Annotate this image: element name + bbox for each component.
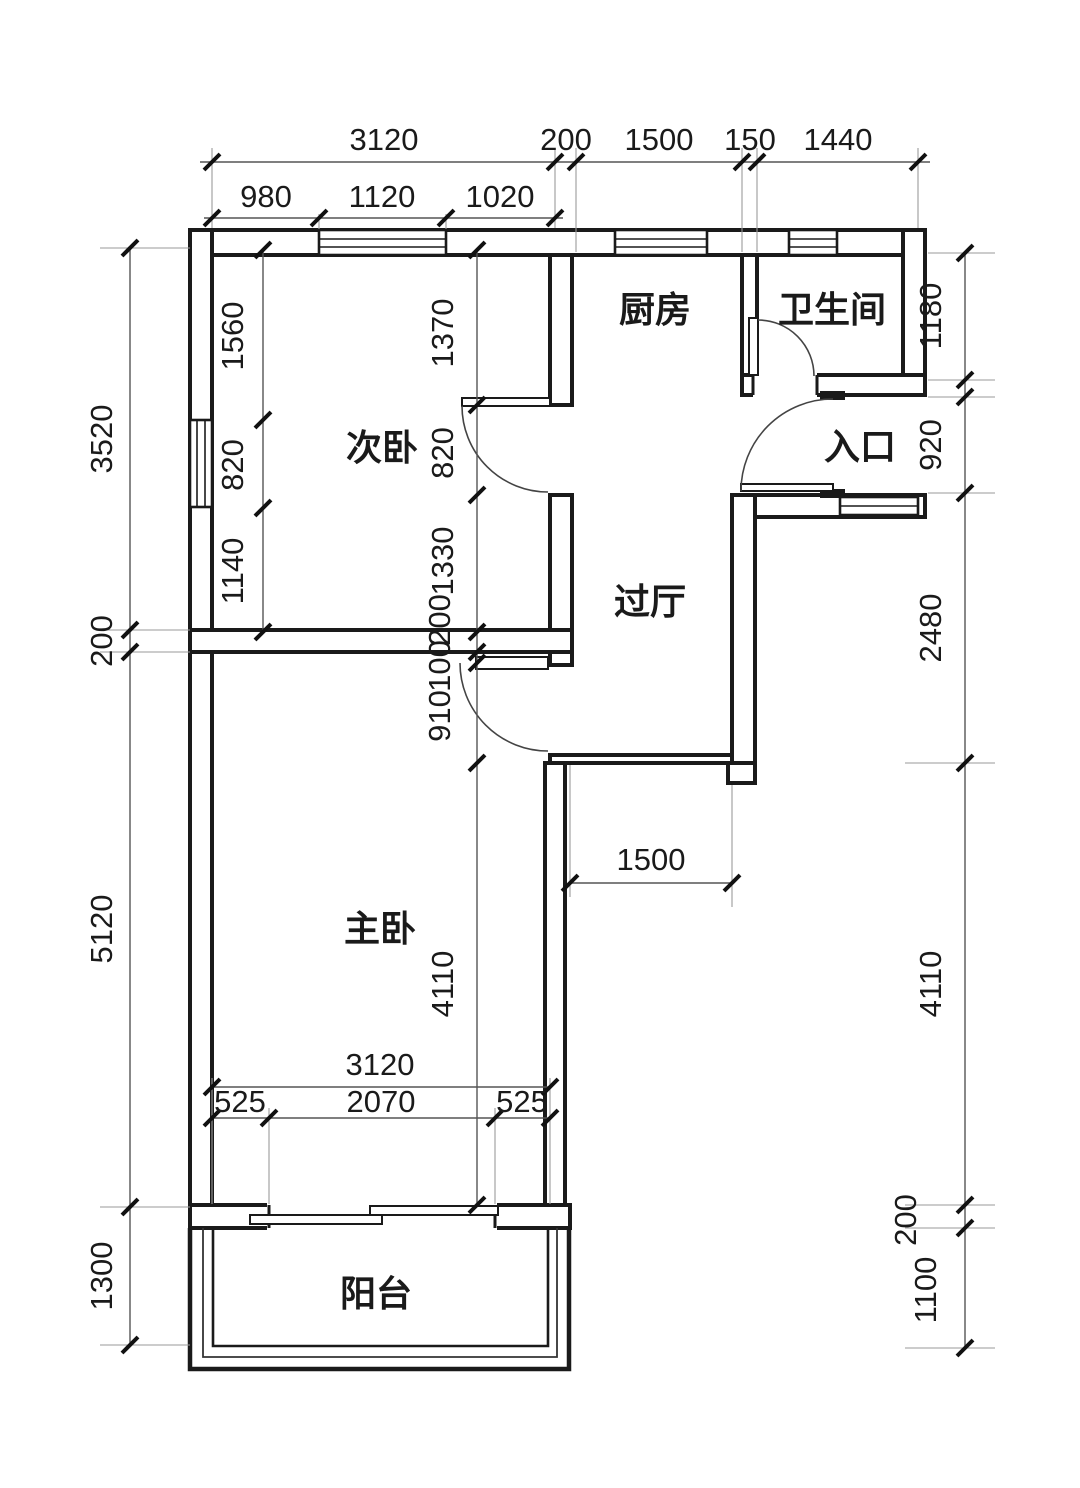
room-label-hallway: 过厅 — [614, 582, 686, 623]
dim-door-200: 200 — [422, 594, 457, 646]
dim-left-1300: 1300 — [84, 1242, 119, 1311]
dim-master-3120: 3120 — [346, 1047, 415, 1082]
dim-balcony-2070: 2070 — [347, 1084, 416, 1119]
dim-bed2-1560: 1560 — [215, 302, 250, 371]
window-entry-corridor — [840, 497, 918, 515]
dim-balcony-525l: 525 — [214, 1084, 266, 1119]
dim-right-1100: 1100 — [908, 1257, 943, 1324]
dim-right-2480: 2480 — [913, 594, 948, 663]
wall-left-exterior — [190, 230, 212, 1228]
room-label-balcony: 阳台 — [340, 1274, 412, 1315]
window-bathroom-top — [789, 230, 837, 255]
dim-top-150: 150 — [724, 122, 776, 157]
bedroom2-door — [462, 398, 550, 492]
dim-top-1020: 1020 — [466, 179, 535, 214]
dim-top-1500: 1500 — [625, 122, 694, 157]
dim-balcony-525r: 525 — [496, 1084, 548, 1119]
dim-right-920: 920 — [913, 419, 948, 471]
dim-door-910: 910 — [422, 690, 457, 742]
dim-right-1180: 1180 — [913, 283, 948, 350]
window-bedroom2-top — [319, 230, 446, 255]
room-label-master-bedroom: 主卧 — [344, 909, 416, 950]
wall-bedroom2-right-upper — [550, 255, 572, 405]
dim-top-1440: 1440 — [804, 122, 873, 157]
window-kitchen-top — [615, 230, 707, 255]
dim-top-980: 980 — [240, 179, 292, 214]
wall-hallway-right — [732, 495, 755, 763]
floor-plan-page: 3120 200 1500 150 1440 980 1120 1020 352… — [0, 0, 1080, 1488]
dim-bed2-820r: 820 — [425, 427, 460, 479]
dim-left-200: 200 — [84, 615, 119, 667]
dim-bed2-1370: 1370 — [425, 299, 460, 368]
dim-top-1120: 1120 — [349, 179, 416, 214]
room-labels: 厨房 卫生间 次卧 入口 过厅 主卧 阳台 — [340, 290, 896, 1315]
room-label-secondary-bedroom: 次卧 — [346, 428, 418, 469]
wall-hallway-corner-step — [728, 763, 755, 783]
dim-bed2-1330: 1330 — [425, 527, 460, 596]
dim-right-200: 200 — [888, 1194, 923, 1246]
dim-hall-1500: 1500 — [617, 842, 686, 877]
room-label-kitchen: 厨房 — [619, 290, 691, 331]
window-bedroom2-left — [190, 420, 212, 507]
wall-bedrooms-party — [190, 630, 572, 652]
dim-door-100: 100 — [422, 640, 457, 692]
dim-left-3520: 3520 — [84, 405, 119, 474]
dim-bed2-1140: 1140 — [215, 538, 250, 605]
wall-master-right — [545, 763, 565, 1205]
dim-left-5120: 5120 — [84, 895, 119, 964]
room-label-bathroom: 卫生间 — [778, 290, 886, 331]
dim-top-3120: 3120 — [350, 122, 419, 157]
dim-right-4110: 4110 — [913, 951, 948, 1018]
floor-plan-drawing: 3120 200 1500 150 1440 980 1120 1020 352… — [0, 0, 1080, 1488]
room-label-entrance: 入口 — [824, 427, 896, 468]
master-bedroom-door — [460, 657, 548, 751]
dim-master-4110: 4110 — [425, 951, 460, 1018]
dim-bed2-820l: 820 — [215, 439, 250, 491]
dim-top-200: 200 — [540, 122, 592, 157]
wall-hallway-bottom — [550, 755, 740, 763]
